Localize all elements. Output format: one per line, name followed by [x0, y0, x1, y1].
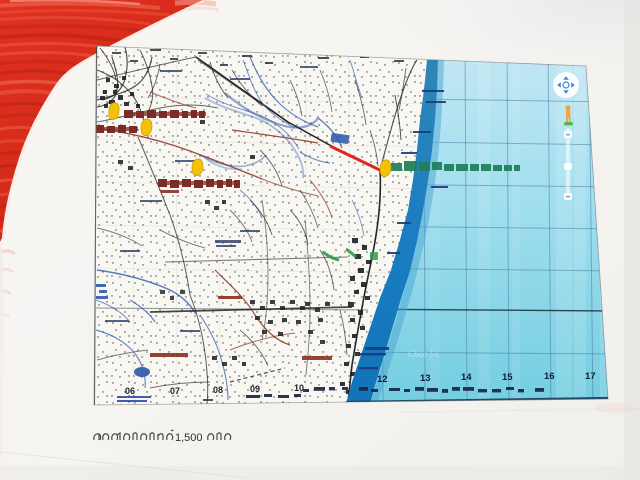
svg-text:13: 13 [420, 373, 431, 384]
svg-text:10: 10 [294, 383, 304, 393]
svg-text:08: 08 [213, 385, 223, 395]
svg-text:06: 06 [125, 386, 135, 396]
svg-text:Chao l-l.: Chao l-l. [408, 349, 440, 359]
svg-text:1,500: 1,500 [175, 432, 203, 444]
svg-text:09: 09 [250, 384, 260, 394]
svg-text:17: 17 [585, 371, 596, 382]
svg-text:15: 15 [502, 372, 513, 383]
svg-text:16: 16 [544, 371, 555, 382]
svg-text:07: 07 [170, 386, 180, 396]
svg-text:14: 14 [461, 372, 472, 383]
svg-text:12: 12 [377, 374, 388, 385]
